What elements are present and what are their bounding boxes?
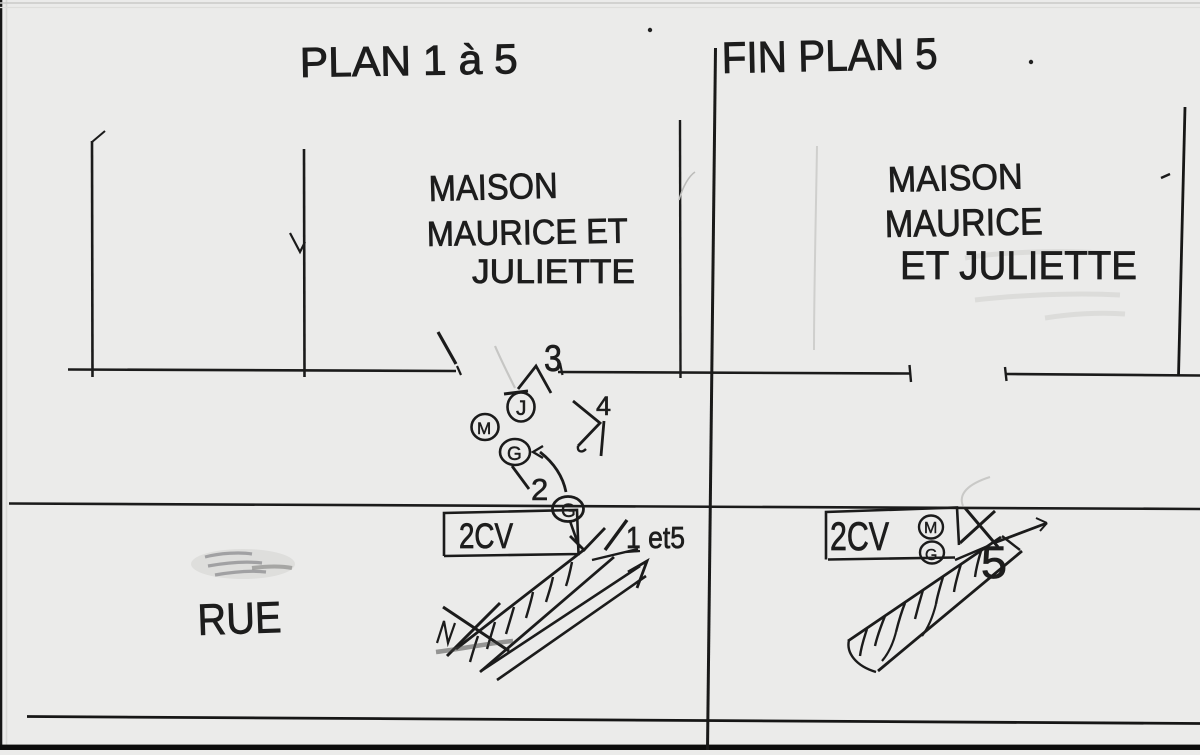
svg-text:3: 3 — [544, 338, 562, 379]
svg-text:J: J — [516, 397, 527, 420]
svg-text:G: G — [925, 547, 937, 564]
svg-text:MAURICE ET: MAURICE ET — [426, 211, 628, 254]
svg-text:G: G — [507, 444, 522, 465]
svg-text:MAISON: MAISON — [887, 155, 1023, 200]
svg-text:M: M — [477, 419, 491, 438]
svg-text:2CV: 2CV — [459, 517, 514, 556]
svg-text:G: G — [561, 501, 576, 522]
svg-text:MAURICE: MAURICE — [884, 201, 1043, 246]
svg-text:JULIETTE: JULIETTE — [472, 253, 635, 291]
svg-text:4: 4 — [596, 391, 611, 421]
svg-text:MAISON: MAISON — [428, 165, 558, 209]
svg-text:RUE: RUE — [197, 593, 283, 645]
svg-text:2: 2 — [531, 472, 548, 507]
svg-text:FIN PLAN 5: FIN PLAN 5 — [721, 29, 938, 83]
svg-text:PLAN 1 à 5: PLAN 1 à 5 — [299, 35, 518, 86]
svg-text:2CV: 2CV — [830, 515, 889, 559]
svg-text:M: M — [924, 520, 937, 537]
svg-text:1 et5: 1 et5 — [626, 520, 685, 555]
svg-text:ET JULIETTE: ET JULIETTE — [900, 244, 1137, 288]
